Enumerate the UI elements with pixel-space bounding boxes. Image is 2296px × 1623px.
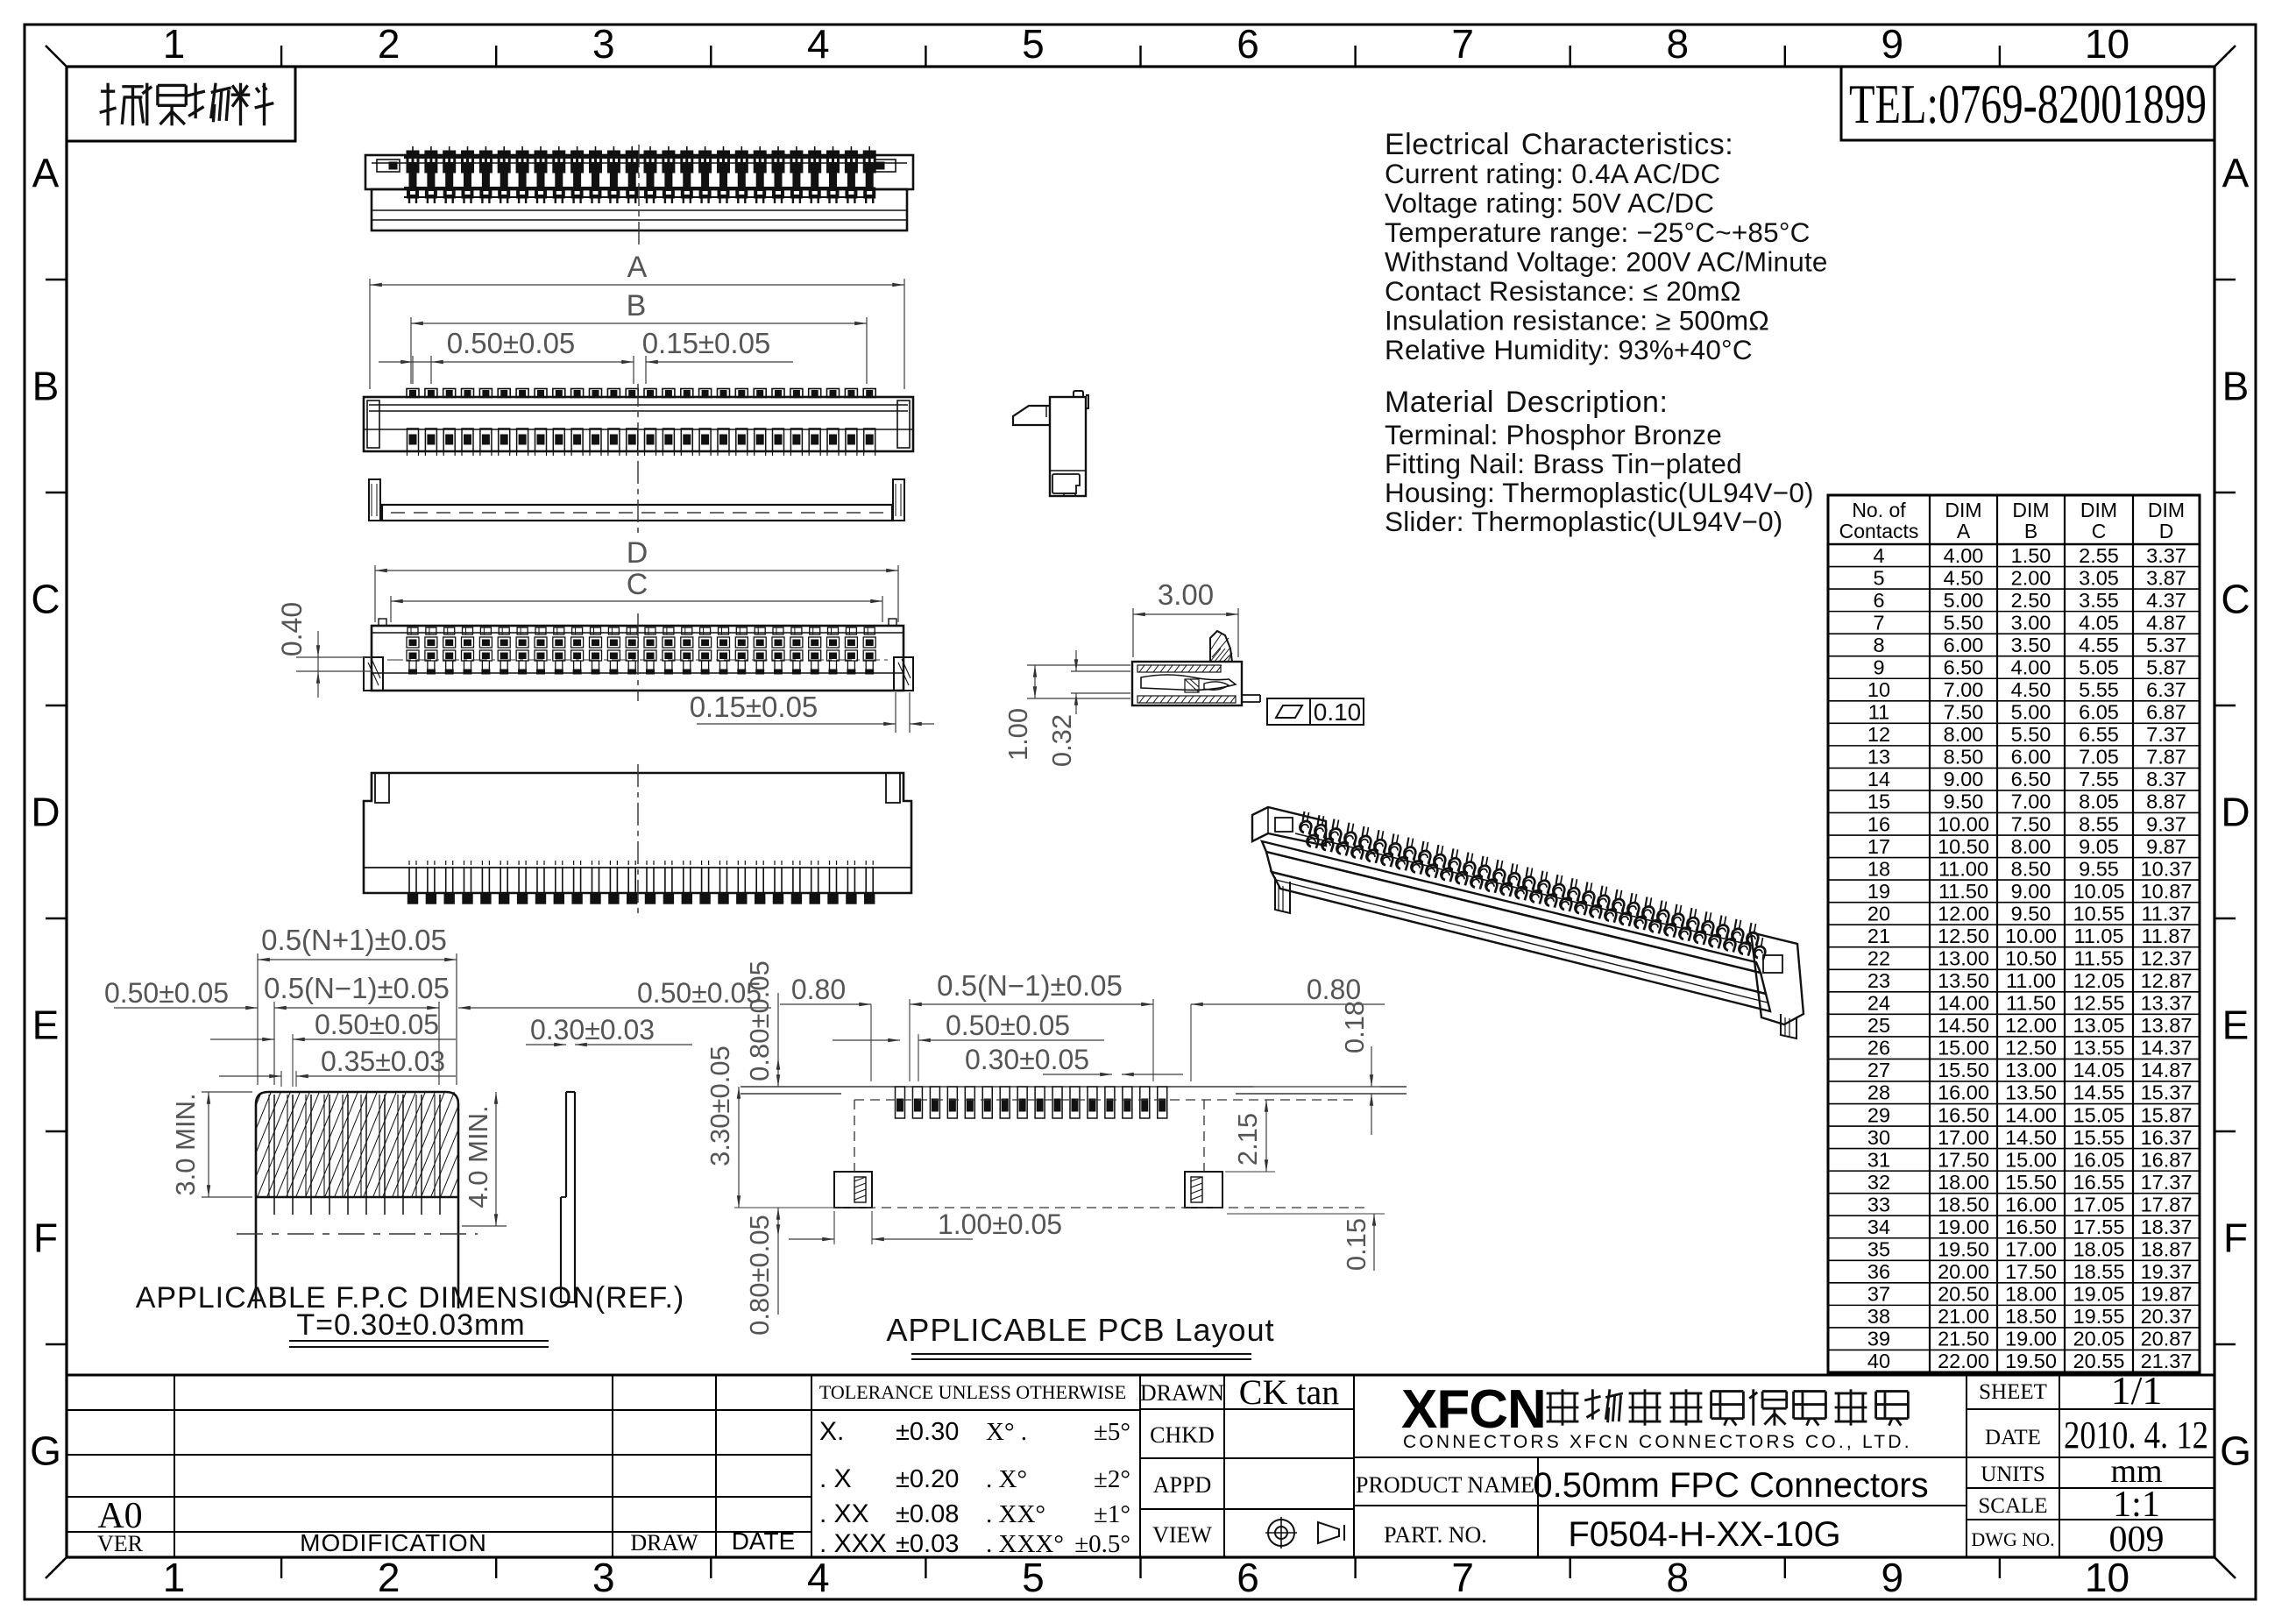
svg-text:±2°: ±2°	[1094, 1465, 1130, 1493]
svg-text:Fitting Nail: Brass Tin−pla: Fitting Nail: Brass Tin−plated	[1385, 448, 1742, 479]
svg-text:0.5(N+1)±0.05: 0.5(N+1)±0.05	[261, 924, 447, 956]
svg-text:0.30±0.03: 0.30±0.03	[530, 1014, 655, 1045]
svg-text:. XX°: . XX°	[986, 1500, 1045, 1528]
svg-text:B: B	[627, 289, 647, 322]
svg-text:D: D	[627, 536, 648, 570]
svg-text:34: 34	[1867, 1215, 1890, 1238]
svg-text:. XX: . XX	[819, 1499, 869, 1528]
svg-text:14.55: 14.55	[2073, 1081, 2125, 1104]
svg-text:9.55: 9.55	[2079, 857, 2119, 880]
svg-text:D: D	[2159, 520, 2174, 542]
svg-text:11.37: 11.37	[2141, 902, 2191, 925]
svg-text:13.50: 13.50	[1938, 969, 1989, 992]
svg-text:3: 3	[592, 1555, 615, 1600]
svg-text:8.50: 8.50	[2011, 857, 2052, 880]
svg-text:DIM: DIM	[2148, 499, 2185, 521]
svg-text:E: E	[2222, 1003, 2250, 1048]
svg-text:19.00: 19.00	[2005, 1328, 2057, 1350]
svg-text:T=0.30±0.03mm: T=0.30±0.03mm	[296, 1308, 525, 1342]
svg-text:3.50: 3.50	[2011, 634, 2052, 656]
svg-text:UNITS: UNITS	[1981, 1463, 2045, 1486]
svg-text:16.00: 16.00	[2005, 1193, 2057, 1215]
svg-text:6.05: 6.05	[2079, 701, 2119, 724]
svg-text:0.50±0.05: 0.50±0.05	[637, 977, 762, 1009]
svg-text:DWG NO.: DWG NO.	[1971, 1528, 2054, 1550]
svg-text:APPD: APPD	[1153, 1472, 1211, 1498]
svg-text:C: C	[627, 568, 648, 601]
svg-text:±0.30: ±0.30	[896, 1418, 959, 1446]
svg-text:Slider: Thermoplastic(UL94V−0: Slider: Thermoplastic(UL94V−0)	[1385, 506, 1783, 537]
svg-text:6.00: 6.00	[2011, 746, 2052, 769]
svg-text:9.50: 9.50	[2011, 902, 2052, 925]
svg-text:11.00: 11.00	[1938, 857, 1988, 880]
svg-text:4: 4	[1873, 544, 1884, 567]
svg-text:0.18: 0.18	[1339, 1001, 1370, 1053]
svg-text:5.50: 5.50	[1944, 611, 1984, 634]
svg-text:3.0 MIN.: 3.0 MIN.	[170, 1093, 201, 1195]
svg-text:1/1: 1/1	[2111, 1368, 2163, 1413]
svg-text:4: 4	[807, 21, 830, 67]
svg-text:17.00: 17.00	[2005, 1238, 2057, 1261]
svg-text:Contacts: Contacts	[1839, 520, 1919, 542]
svg-text:13.50: 13.50	[2005, 1081, 2057, 1104]
svg-text:CHKD: CHKD	[1150, 1422, 1215, 1448]
svg-text:17.50: 17.50	[2005, 1260, 2057, 1283]
svg-text:4.87: 4.87	[2146, 611, 2186, 634]
svg-text:3.37: 3.37	[2146, 544, 2186, 567]
svg-text:8: 8	[1873, 634, 1884, 656]
svg-text:3.05: 3.05	[2079, 566, 2119, 589]
svg-text:19: 19	[1867, 880, 1890, 903]
svg-text:0.5(N−1)±0.05: 0.5(N−1)±0.05	[264, 972, 450, 1004]
svg-text:13.00: 13.00	[2005, 1059, 2057, 1081]
svg-text:16.50: 16.50	[1938, 1103, 1989, 1126]
svg-text:19.55: 19.55	[2073, 1305, 2125, 1328]
svg-text:Temperature range: −25°C~+85: Temperature range: −25°C~+85°C	[1385, 216, 1811, 248]
svg-text:Voltage rating: 50V AC/DC: Voltage rating: 50V AC/DC	[1385, 188, 1714, 219]
svg-text:C: C	[2092, 520, 2107, 542]
svg-text:B: B	[2024, 520, 2037, 542]
svg-text:12.55: 12.55	[2073, 992, 2125, 1015]
svg-text:3.55: 3.55	[2079, 589, 2119, 612]
svg-text:VER: VER	[97, 1531, 144, 1556]
svg-text:DRAW: DRAW	[630, 1530, 698, 1556]
svg-text:0.80±0.05: 0.80±0.05	[744, 960, 775, 1081]
svg-text:13: 13	[1867, 746, 1890, 769]
svg-text:Relative Humidity: 93%+40°C: Relative Humidity: 93%+40°C	[1385, 334, 1753, 365]
svg-text:B: B	[2222, 364, 2250, 409]
svg-text:18.50: 18.50	[1938, 1193, 1989, 1215]
svg-text:14.00: 14.00	[1938, 992, 1989, 1015]
svg-text:9.05: 9.05	[2079, 835, 2119, 858]
svg-text:G: G	[30, 1428, 61, 1474]
svg-text:2.55: 2.55	[2079, 544, 2119, 567]
svg-text:Housing: Thermoplastic(UL94V−: Housing: Thermoplastic(UL94V−0)	[1385, 477, 1814, 508]
svg-text:18.50: 18.50	[2005, 1305, 2057, 1328]
svg-text:5: 5	[1022, 1555, 1045, 1600]
svg-text:5: 5	[1022, 21, 1045, 67]
svg-text:0.50±0.05: 0.50±0.05	[104, 977, 229, 1009]
svg-text:8.50: 8.50	[1944, 746, 1984, 769]
svg-text:VIEW: VIEW	[1152, 1522, 1212, 1548]
svg-text:23: 23	[1867, 969, 1890, 992]
svg-text:DATE: DATE	[732, 1527, 796, 1555]
svg-text:2010. 4. 12: 2010. 4. 12	[2064, 1414, 2208, 1456]
svg-text:13.37: 13.37	[2141, 992, 2193, 1015]
svg-text:15.50: 15.50	[1938, 1059, 1989, 1081]
svg-text:4.55: 4.55	[2079, 634, 2119, 656]
svg-text:6: 6	[1237, 1555, 1259, 1600]
svg-text:0.50±0.05: 0.50±0.05	[447, 327, 576, 359]
svg-text:3.30±0.05: 3.30±0.05	[705, 1045, 735, 1166]
svg-text:1: 1	[163, 21, 186, 67]
svg-text:C: C	[2221, 577, 2250, 622]
svg-text:7: 7	[1873, 611, 1884, 634]
svg-text:C: C	[31, 577, 60, 622]
svg-text:11.50: 11.50	[1938, 880, 1988, 903]
svg-text:0.80: 0.80	[791, 974, 846, 1005]
svg-text:16.00: 16.00	[1938, 1081, 1989, 1104]
svg-text:35: 35	[1867, 1238, 1890, 1261]
svg-text:9: 9	[1881, 1555, 1904, 1600]
svg-text:2: 2	[378, 1555, 400, 1600]
svg-text:18.87: 18.87	[2141, 1238, 2193, 1261]
svg-text:7.37: 7.37	[2146, 723, 2186, 746]
svg-text:11.05: 11.05	[2073, 925, 2123, 947]
svg-text:F: F	[2223, 1215, 2248, 1261]
svg-text:17.55: 17.55	[2073, 1215, 2125, 1238]
svg-text:3.00: 3.00	[2011, 611, 2052, 634]
svg-text:F0504-H-XX-10G: F0504-H-XX-10G	[1568, 1515, 1840, 1554]
svg-text:11.87: 11.87	[2141, 925, 2191, 947]
svg-text:Material Description:: Material Description:	[1385, 386, 1668, 419]
svg-text:1: 1	[163, 1555, 186, 1600]
svg-text:PRODUCT NAME: PRODUCT NAME	[1356, 1472, 1534, 1498]
svg-text:F: F	[33, 1215, 58, 1261]
svg-text:9.37: 9.37	[2146, 812, 2186, 835]
svg-text:14.50: 14.50	[2005, 1126, 2057, 1149]
svg-text:21.50: 21.50	[1938, 1328, 1989, 1350]
svg-text:Current rating: 0.4A AC/DC: Current rating: 0.4A AC/DC	[1385, 158, 1720, 189]
svg-text:G: G	[2220, 1428, 2251, 1474]
svg-text:12.00: 12.00	[2005, 1014, 2057, 1037]
svg-text:19.50: 19.50	[2005, 1350, 2057, 1372]
svg-text:26: 26	[1867, 1037, 1890, 1060]
svg-text:16.55: 16.55	[2073, 1171, 2125, 1194]
svg-text:0.32: 0.32	[1046, 714, 1077, 767]
svg-text:Withstand Voltage: 200V AC/: Withstand Voltage: 200V AC/Minute	[1385, 246, 1828, 278]
svg-text:5.00: 5.00	[2011, 701, 2052, 724]
svg-text:19.00: 19.00	[1938, 1215, 1989, 1238]
svg-text:13.87: 13.87	[2141, 1014, 2193, 1037]
svg-text:. XXX°: . XXX°	[986, 1530, 1064, 1558]
svg-text:0.80: 0.80	[1307, 974, 1361, 1005]
svg-text:8.00: 8.00	[1944, 723, 1984, 746]
svg-text:7.50: 7.50	[2011, 812, 2052, 835]
svg-text:MODIFICATION: MODIFICATION	[300, 1529, 487, 1556]
svg-text:4.50: 4.50	[1944, 566, 1984, 589]
svg-text:4.37: 4.37	[2146, 589, 2186, 612]
svg-text:22.00: 22.00	[1938, 1350, 1989, 1372]
svg-text:7.55: 7.55	[2079, 768, 2119, 790]
svg-text:9: 9	[1873, 656, 1884, 678]
svg-text:D: D	[31, 790, 60, 835]
svg-text:3.87: 3.87	[2146, 566, 2186, 589]
svg-text:12.05: 12.05	[2073, 969, 2125, 992]
svg-text:PART. NO.: PART. NO.	[1384, 1522, 1487, 1548]
svg-text:3: 3	[592, 21, 615, 67]
svg-text:0.35±0.03: 0.35±0.03	[321, 1045, 445, 1077]
svg-text:CONNECTORS XFCN CONNECTORS CO.: CONNECTORS XFCN CONNECTORS CO., LTD.	[1403, 1432, 1912, 1452]
svg-text:±0.5°: ±0.5°	[1074, 1530, 1130, 1558]
svg-text:6.87: 6.87	[2146, 701, 2186, 724]
svg-text:17.87: 17.87	[2141, 1193, 2193, 1215]
svg-text:Insulation resistance: ≥ 500: Insulation resistance: ≥ 500mΩ	[1385, 305, 1769, 337]
svg-text:DIM: DIM	[2012, 499, 2049, 521]
svg-text:18.55: 18.55	[2073, 1260, 2125, 1283]
svg-text:12.87: 12.87	[2141, 969, 2193, 992]
svg-text:9.50: 9.50	[1944, 790, 1984, 813]
svg-text:DATE: DATE	[1985, 1426, 2041, 1449]
svg-text:No. of: No. of	[1852, 499, 1906, 521]
svg-text:D: D	[2221, 790, 2250, 835]
svg-text:10.00: 10.00	[1938, 812, 1989, 835]
svg-text:18.37: 18.37	[2141, 1215, 2193, 1238]
svg-text:4.00: 4.00	[1944, 544, 1984, 567]
svg-text:16.50: 16.50	[2005, 1215, 2057, 1238]
svg-text:10: 10	[1867, 678, 1890, 701]
svg-text:0.15±0.05: 0.15±0.05	[642, 327, 771, 359]
svg-text:12: 12	[1867, 723, 1890, 746]
svg-text:15.00: 15.00	[1938, 1037, 1989, 1060]
svg-text:±0.08: ±0.08	[896, 1500, 959, 1528]
svg-text:39: 39	[1867, 1328, 1890, 1350]
svg-text:009: 009	[2109, 1520, 2165, 1560]
svg-text:12.37: 12.37	[2141, 947, 2193, 970]
svg-text:20.87: 20.87	[2141, 1328, 2193, 1350]
svg-text:DIM: DIM	[2080, 499, 2117, 521]
svg-text:6.37: 6.37	[2146, 678, 2186, 701]
svg-text:10.55: 10.55	[2073, 902, 2125, 925]
svg-text:Terminal: Phosphor Bronze: Terminal: Phosphor Bronze	[1385, 419, 1722, 450]
svg-text:28: 28	[1867, 1081, 1890, 1104]
svg-text:8: 8	[1666, 1555, 1689, 1600]
svg-text:15.87: 15.87	[2141, 1103, 2193, 1126]
svg-text:15: 15	[1867, 790, 1890, 813]
svg-text:5.05: 5.05	[2079, 656, 2119, 678]
svg-text:7.00: 7.00	[1944, 678, 1984, 701]
svg-text:40: 40	[1867, 1350, 1890, 1372]
svg-text:38: 38	[1867, 1305, 1890, 1328]
svg-text:17.00: 17.00	[1938, 1126, 1989, 1149]
svg-text:7: 7	[1451, 21, 1474, 67]
svg-text:E: E	[32, 1003, 60, 1048]
svg-text:14.05: 14.05	[2073, 1059, 2125, 1081]
svg-text:2.15: 2.15	[1232, 1113, 1263, 1166]
svg-text:21: 21	[1867, 925, 1890, 947]
svg-text:11.55: 11.55	[2073, 947, 2123, 970]
svg-text:DRAWN: DRAWN	[1140, 1380, 1224, 1406]
svg-text:X.: X.	[819, 1417, 844, 1446]
svg-text:4.05: 4.05	[2079, 611, 2119, 634]
svg-text:9.00: 9.00	[1944, 768, 1984, 790]
svg-text:±5°: ±5°	[1094, 1418, 1130, 1446]
svg-text:0.50±0.05: 0.50±0.05	[315, 1009, 439, 1040]
svg-text:16.87: 16.87	[2141, 1148, 2193, 1171]
svg-text:15.05: 15.05	[2073, 1103, 2125, 1126]
svg-text:13.55: 13.55	[2073, 1037, 2125, 1060]
svg-text:17.37: 17.37	[2141, 1171, 2193, 1194]
svg-text:20.05: 20.05	[2073, 1328, 2125, 1350]
svg-text:10: 10	[2085, 1555, 2129, 1600]
svg-text:5.87: 5.87	[2146, 656, 2186, 678]
svg-text:12.00: 12.00	[1938, 902, 1989, 925]
svg-text:4.00: 4.00	[2011, 656, 2052, 678]
svg-text:SHEET: SHEET	[1979, 1380, 2047, 1404]
svg-text:6.00: 6.00	[1944, 634, 1984, 656]
svg-text:36: 36	[1867, 1260, 1890, 1283]
svg-text:11: 11	[1868, 701, 1889, 724]
svg-text:17.05: 17.05	[2073, 1193, 2125, 1215]
svg-text:1.50: 1.50	[2011, 544, 2052, 567]
svg-text:18.00: 18.00	[1938, 1171, 1989, 1194]
svg-text:5.50: 5.50	[2011, 723, 2052, 746]
svg-text:15.55: 15.55	[2073, 1126, 2125, 1149]
svg-text:4.50: 4.50	[2011, 678, 2052, 701]
svg-text:A: A	[627, 251, 648, 284]
svg-text:18.05: 18.05	[2073, 1238, 2125, 1261]
svg-text:9.00: 9.00	[2011, 880, 2052, 903]
svg-text:0.10: 0.10	[1314, 698, 1362, 726]
svg-text:29: 29	[1867, 1103, 1890, 1126]
svg-text:. X°: . X°	[986, 1465, 1027, 1493]
svg-text:19.87: 19.87	[2141, 1283, 2193, 1306]
svg-text:6.50: 6.50	[1944, 656, 1984, 678]
svg-text:32: 32	[1867, 1171, 1890, 1194]
svg-text:19.50: 19.50	[1938, 1238, 1989, 1261]
svg-text:8.87: 8.87	[2146, 790, 2186, 813]
svg-text:14.37: 14.37	[2141, 1037, 2193, 1060]
svg-text:37: 37	[1867, 1283, 1890, 1306]
svg-text:X° .: X° .	[986, 1418, 1027, 1446]
svg-text:6.50: 6.50	[2011, 768, 2052, 790]
svg-text:8.37: 8.37	[2146, 768, 2186, 790]
svg-text:Electrical Characteristics:: Electrical Characteristics:	[1385, 128, 1733, 161]
svg-text:18: 18	[1867, 857, 1890, 880]
svg-text:TEL:0769-82001899: TEL:0769-82001899	[1849, 73, 2207, 135]
svg-text:33: 33	[1867, 1193, 1890, 1215]
svg-text:17: 17	[1867, 835, 1890, 858]
svg-text:30: 30	[1867, 1126, 1890, 1149]
svg-text:8.00: 8.00	[2011, 835, 2052, 858]
svg-text:21.00: 21.00	[1938, 1305, 1989, 1328]
svg-text:7.50: 7.50	[1944, 701, 1984, 724]
svg-text:5.55: 5.55	[2079, 678, 2119, 701]
svg-text:13.05: 13.05	[2073, 1014, 2125, 1037]
svg-text:13.00: 13.00	[1938, 947, 1989, 970]
svg-text:0.40: 0.40	[276, 602, 308, 656]
svg-text:11.00: 11.00	[2006, 969, 2056, 992]
svg-text:0.15±0.05: 0.15±0.05	[690, 691, 818, 723]
svg-text:10: 10	[2085, 21, 2129, 67]
svg-text:17.50: 17.50	[1938, 1148, 1989, 1171]
svg-text:20: 20	[1867, 902, 1890, 925]
svg-text:7.00: 7.00	[2011, 790, 2052, 813]
svg-text:14: 14	[1867, 768, 1890, 790]
svg-text:18.00: 18.00	[2005, 1283, 2057, 1306]
svg-text:12.50: 12.50	[2005, 1037, 2057, 1060]
svg-text:A: A	[2222, 151, 2250, 196]
svg-text:CK tan: CK tan	[1239, 1372, 1339, 1412]
svg-text:. X: . X	[819, 1464, 852, 1493]
svg-text:19.37: 19.37	[2141, 1260, 2193, 1283]
svg-text:15.50: 15.50	[2005, 1171, 2057, 1194]
svg-text:20.50: 20.50	[1938, 1283, 1989, 1306]
svg-text:2.00: 2.00	[2011, 566, 2052, 589]
svg-text:0.5(N−1)±0.05: 0.5(N−1)±0.05	[937, 969, 1123, 1002]
svg-text:27: 27	[1867, 1059, 1890, 1081]
svg-text:11.50: 11.50	[2006, 992, 2056, 1015]
svg-text:SCALE: SCALE	[1978, 1494, 2047, 1518]
svg-text:6.55: 6.55	[2079, 723, 2119, 746]
svg-text:9.87: 9.87	[2146, 835, 2186, 858]
svg-text:8: 8	[1666, 21, 1689, 67]
svg-text:24: 24	[1867, 992, 1890, 1015]
svg-text:TOLERANCE UNLESS OTHERWISE: TOLERANCE UNLESS OTHERWISE	[819, 1381, 1126, 1403]
svg-text:14.00: 14.00	[2005, 1103, 2057, 1126]
svg-text:0.80±0.05: 0.80±0.05	[744, 1215, 775, 1336]
svg-text:9: 9	[1881, 21, 1904, 67]
svg-text:25: 25	[1867, 1014, 1890, 1037]
svg-text:10.37: 10.37	[2141, 857, 2193, 880]
svg-text:0.50±0.05: 0.50±0.05	[946, 1010, 1070, 1041]
svg-text:DIM: DIM	[1945, 499, 1981, 521]
svg-text:APPLICABLE PCB Layout: APPLICABLE PCB Layout	[886, 1312, 1274, 1348]
svg-text:10.00: 10.00	[2005, 925, 2057, 947]
svg-text:14.50: 14.50	[1938, 1014, 1989, 1037]
svg-text:31: 31	[1867, 1148, 1890, 1171]
svg-text:A: A	[32, 151, 60, 196]
svg-text:±0.03: ±0.03	[896, 1530, 959, 1558]
svg-text:15.00: 15.00	[2005, 1148, 2057, 1171]
svg-text:20.00: 20.00	[1938, 1260, 1989, 1283]
svg-text:8.55: 8.55	[2079, 812, 2119, 835]
svg-text:8.05: 8.05	[2079, 790, 2119, 813]
svg-text:10.50: 10.50	[2005, 947, 2057, 970]
svg-text:0.15: 0.15	[1341, 1218, 1371, 1271]
svg-text:19.05: 19.05	[2073, 1283, 2125, 1306]
svg-text:5: 5	[1873, 566, 1884, 589]
svg-text:14.87: 14.87	[2141, 1059, 2193, 1081]
svg-text:6: 6	[1237, 21, 1259, 67]
svg-text:7: 7	[1451, 1555, 1474, 1600]
svg-text:15.37: 15.37	[2141, 1081, 2193, 1104]
svg-text:1.00: 1.00	[1003, 708, 1033, 761]
svg-text:0.50mm FPC Connectors: 0.50mm FPC Connectors	[1533, 1466, 1928, 1505]
svg-text:6: 6	[1873, 589, 1884, 612]
svg-text:7.05: 7.05	[2079, 746, 2119, 769]
svg-text:1.00±0.05: 1.00±0.05	[938, 1208, 1062, 1240]
svg-text:20.37: 20.37	[2141, 1305, 2193, 1328]
svg-text:4.0 MIN.: 4.0 MIN.	[463, 1105, 493, 1208]
svg-text:10.87: 10.87	[2141, 880, 2193, 903]
svg-text:10.50: 10.50	[1938, 835, 1989, 858]
svg-text:12.50: 12.50	[1938, 925, 1989, 947]
svg-text:A: A	[1957, 520, 1971, 542]
svg-text:Contact Resistance: ≤ 20mΩ: Contact Resistance: ≤ 20mΩ	[1385, 275, 1741, 307]
svg-text:5.37: 5.37	[2146, 634, 2186, 656]
svg-text:±1°: ±1°	[1094, 1500, 1130, 1528]
